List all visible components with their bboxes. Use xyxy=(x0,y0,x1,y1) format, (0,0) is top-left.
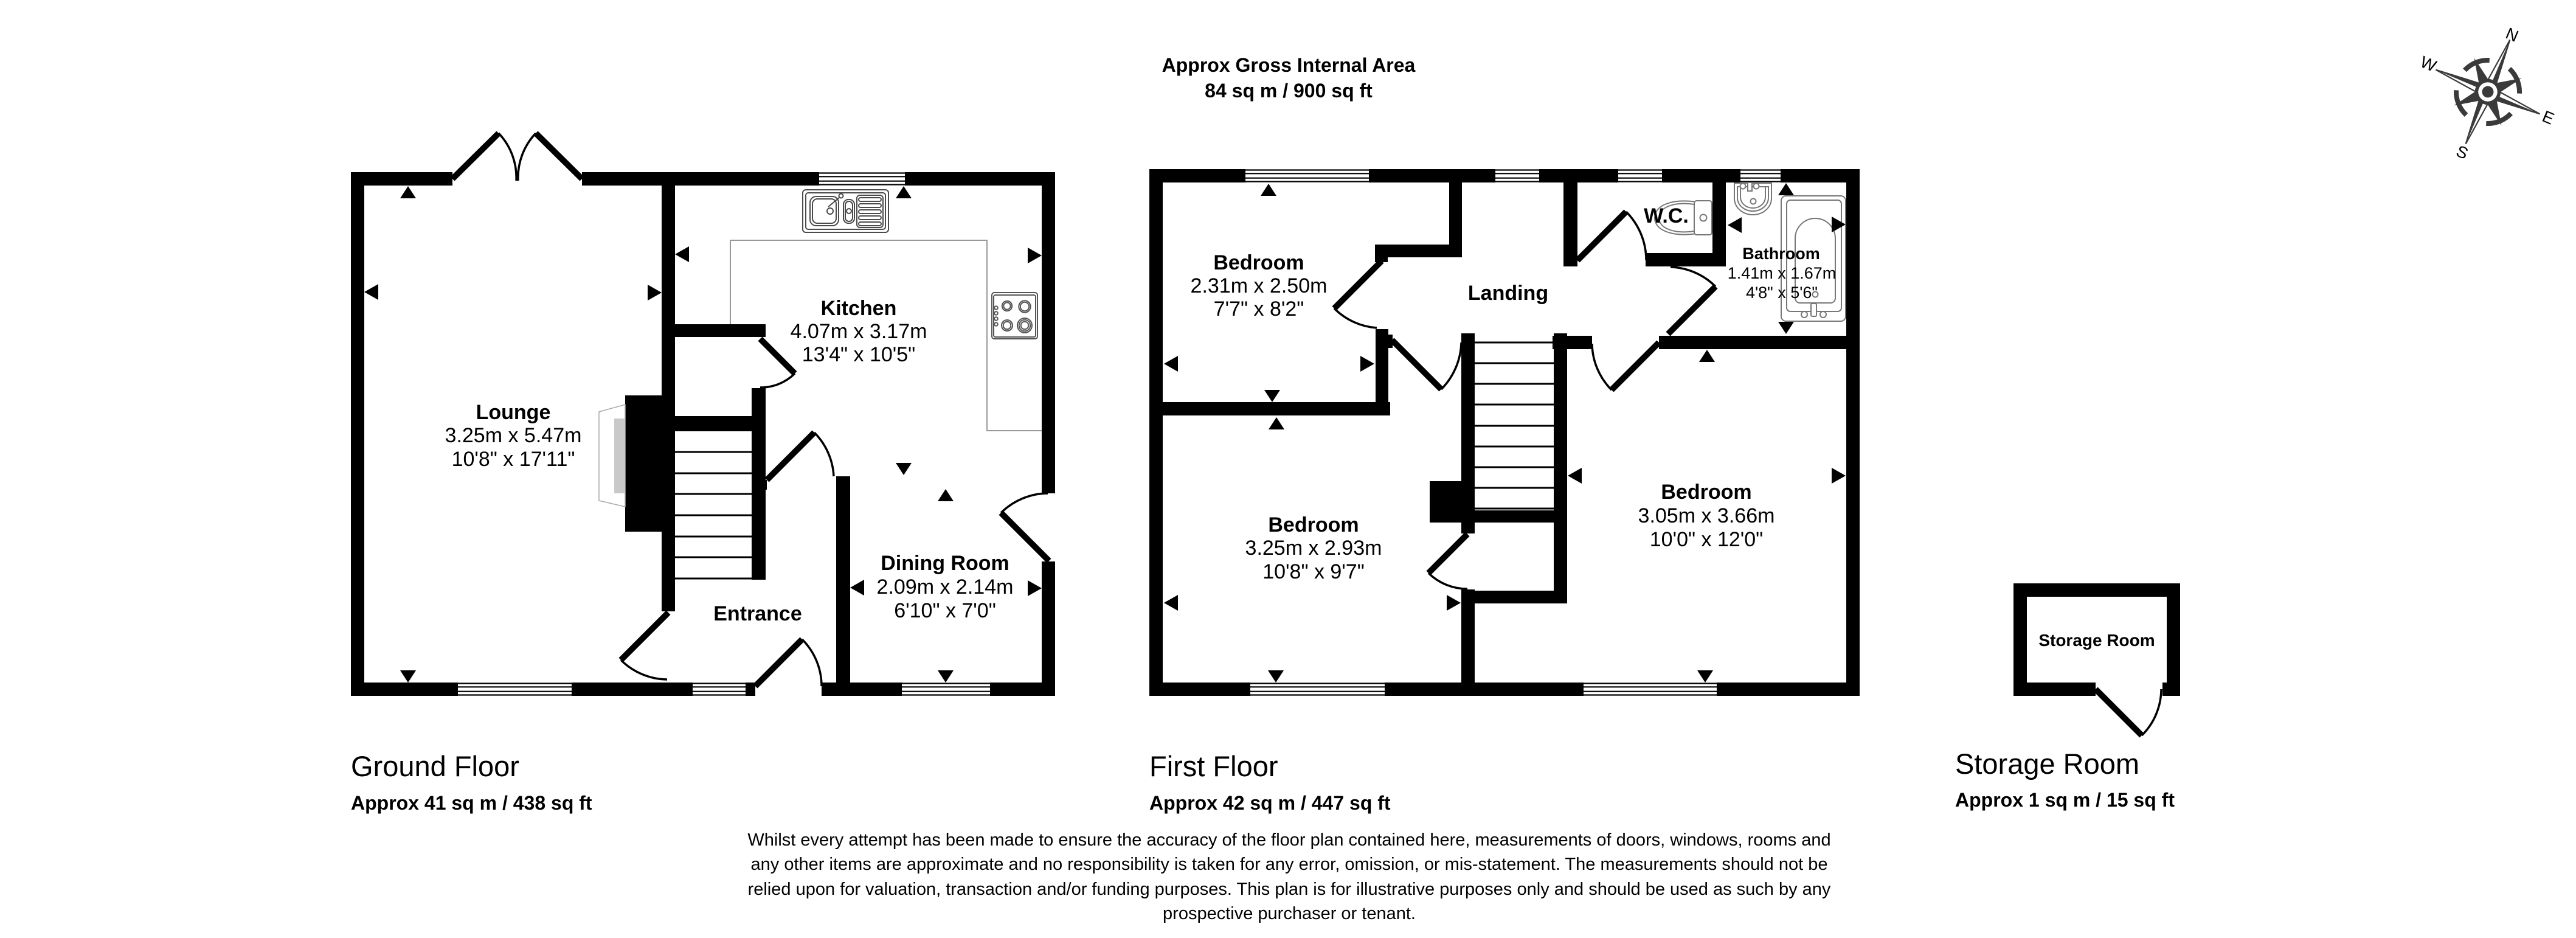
svg-text:3.25m x 5.47m: 3.25m x 5.47m xyxy=(445,424,582,447)
svg-text:Landing: Landing xyxy=(1468,282,1548,305)
svg-text:Bathroom: Bathroom xyxy=(1742,245,1820,263)
svg-text:10'0" x 12'0": 10'0" x 12'0" xyxy=(1650,528,1763,551)
svg-text:First Floor: First Floor xyxy=(1149,750,1278,782)
svg-text:4'8" x 5'6": 4'8" x 5'6" xyxy=(1746,283,1818,302)
svg-text:Entrance: Entrance xyxy=(713,602,802,625)
svg-text:3.05m x 3.66m: 3.05m x 3.66m xyxy=(1638,504,1775,527)
svg-text:2.09m x 2.14m: 2.09m x 2.14m xyxy=(877,575,1014,599)
svg-text:Whilst every attempt has been: Whilst every attempt has been made to en… xyxy=(747,830,1830,850)
svg-text:Kitchen: Kitchen xyxy=(821,297,897,320)
svg-text:Lounge: Lounge xyxy=(476,401,551,424)
svg-text:4.07m x 3.17m: 4.07m x 3.17m xyxy=(791,320,927,343)
svg-text:Storage Room: Storage Room xyxy=(2038,631,2155,650)
svg-text:84 sq m / 900 sq ft: 84 sq m / 900 sq ft xyxy=(1205,80,1373,102)
svg-text:W.C.: W.C. xyxy=(1644,204,1689,228)
svg-text:Approx 1 sq m / 15 sq ft: Approx 1 sq m / 15 sq ft xyxy=(1955,789,2175,811)
svg-text:Bedroom: Bedroom xyxy=(1268,513,1359,537)
svg-text:Ground Floor: Ground Floor xyxy=(351,750,519,782)
svg-text:Approx 41 sq m / 438 sq ft: Approx 41 sq m / 438 sq ft xyxy=(351,792,592,814)
svg-text:Dining Room: Dining Room xyxy=(881,552,1009,575)
svg-text:3.25m x 2.93m: 3.25m x 2.93m xyxy=(1245,537,1382,560)
svg-text:Bedroom: Bedroom xyxy=(1661,481,1751,504)
svg-text:7'7" x 8'2": 7'7" x 8'2" xyxy=(1214,297,1304,321)
svg-text:prospective purchaser or tenan: prospective purchaser or tenant. xyxy=(1163,904,1416,923)
svg-text:Storage Room: Storage Room xyxy=(1955,748,2139,780)
svg-text:Bedroom: Bedroom xyxy=(1213,251,1304,274)
svg-text:10'8" x 17'11": 10'8" x 17'11" xyxy=(452,448,575,471)
svg-text:10'8" x 9'7": 10'8" x 9'7" xyxy=(1262,560,1365,583)
svg-text:2.31m x 2.50m: 2.31m x 2.50m xyxy=(1191,274,1328,297)
svg-text:relied upon for valuation, tra: relied upon for valuation, transaction a… xyxy=(748,880,1831,899)
svg-text:Approx 42 sq m / 447 sq ft: Approx 42 sq m / 447 sq ft xyxy=(1149,792,1391,814)
svg-text:6'10" x 7'0": 6'10" x 7'0" xyxy=(894,599,996,622)
svg-text:Approx Gross Internal Area: Approx Gross Internal Area xyxy=(1162,54,1416,76)
svg-text:1.41m x 1.67m: 1.41m x 1.67m xyxy=(1728,264,1837,282)
svg-text:13'4" x 10'5": 13'4" x 10'5" xyxy=(802,343,915,366)
svg-text:any other items are approximat: any other items are approximate and no r… xyxy=(751,855,1828,874)
